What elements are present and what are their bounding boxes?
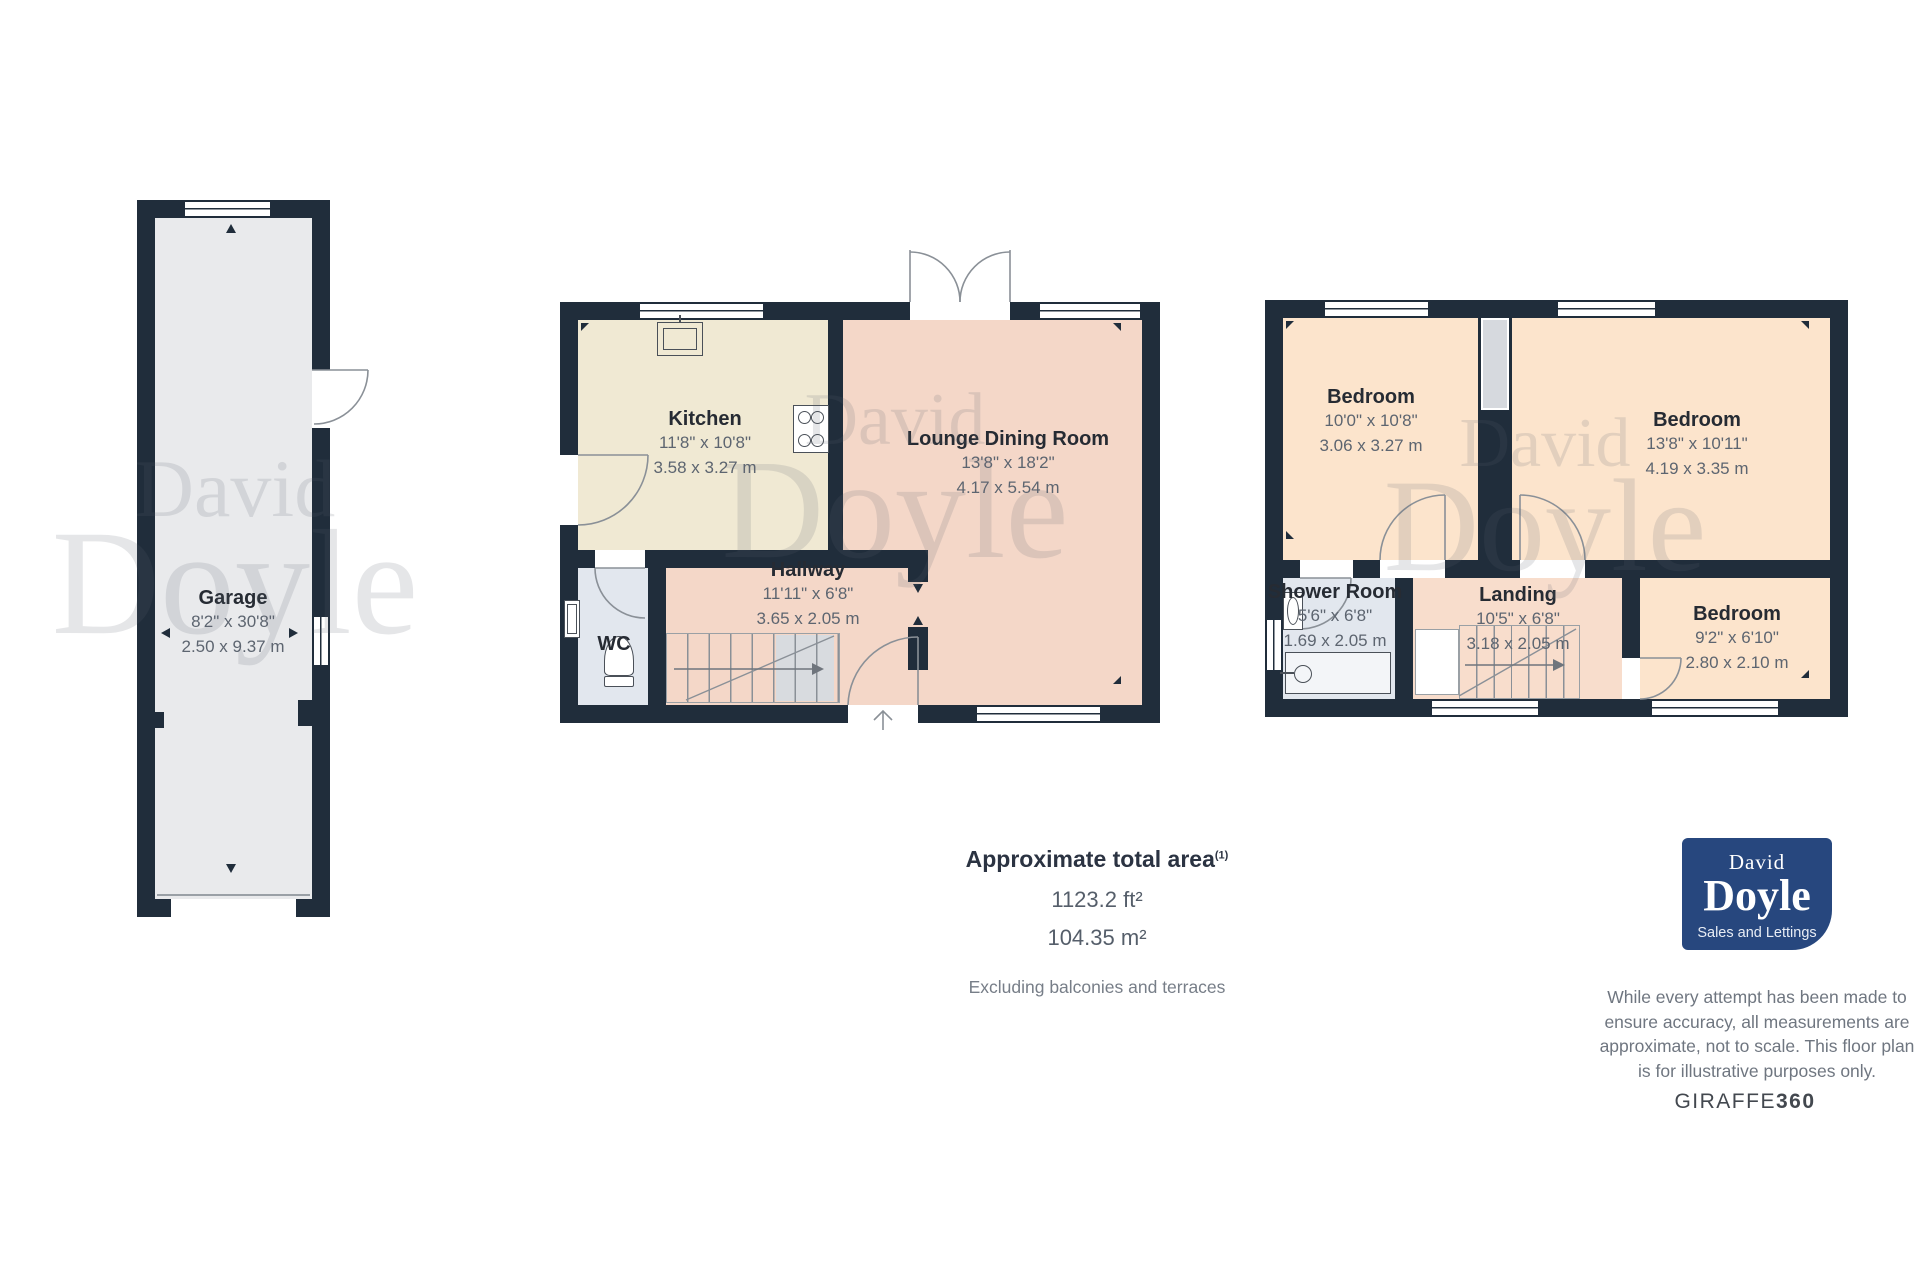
entrance-arrow-icon: [868, 706, 898, 732]
room-dim-metric: 3.18 x 2.05 m: [1466, 632, 1569, 657]
landing-window: [1432, 699, 1538, 717]
kitchen-lounge-wall: [828, 320, 843, 550]
room-name: WC: [597, 632, 630, 656]
garage-vehicle-door-line: [157, 894, 310, 896]
room-name: Lounge Dining Room: [907, 427, 1109, 451]
toilet-tank: [604, 676, 634, 687]
garage-window: [185, 200, 270, 218]
total-area-imperial: 1123.2 ft²: [966, 887, 1229, 913]
room-name: Shower Room: [1268, 580, 1402, 604]
dimension-arrow-left: [161, 628, 170, 638]
room-dim-metric: 1.69 x 2.05 m: [1268, 629, 1402, 654]
cupboard: [1481, 318, 1509, 410]
room-dim-imperial: 5'6" x 6'8": [1268, 604, 1402, 629]
shower-door-opening: [1300, 560, 1353, 578]
corner-tick: [1801, 321, 1809, 329]
wc-door: [595, 568, 647, 620]
room-dim-imperial: 13'8" x 18'2": [907, 451, 1109, 476]
sink-basin: [663, 328, 697, 350]
bedroom1-label: Bedroom 10'0" x 10'8" 3.06 x 3.27 m: [1319, 385, 1422, 458]
stair-guides: [666, 633, 840, 703]
brand-suffix: 360: [1776, 1090, 1816, 1113]
total-area-title: Approximate total area(1): [966, 846, 1229, 873]
kitchen-window: [640, 302, 763, 320]
disclaimer-text: While every attempt has been made to ens…: [1596, 985, 1918, 1083]
french-door-opening: [910, 302, 1010, 320]
bedroom1-door: [1380, 495, 1446, 561]
dimension-arrow-up: [226, 224, 236, 233]
room-dim-metric: 3.65 x 2.05 m: [756, 607, 859, 632]
room-name: Garage: [181, 586, 284, 610]
bedroom3-door-opening: [1622, 658, 1640, 699]
bedroom2-door: [1520, 495, 1586, 561]
logo-main-text: Doyle: [1682, 875, 1832, 917]
lounge-label: Lounge Dining Room 13'8" x 18'2" 4.17 x …: [907, 427, 1109, 500]
room-dim-imperial: 9'2" x 6'10": [1685, 626, 1788, 651]
room-dim-imperial: 11'11" x 6'8": [756, 582, 859, 607]
floorplan-page: Garage 8'2" x 30'8" 2.50 x 9.37 m: [0, 0, 1920, 1280]
corner-tick: [581, 323, 589, 331]
wc-wall: [648, 568, 666, 723]
corner-tick: [1113, 676, 1121, 684]
agency-logo: David Doyle Sales and Lettings: [1682, 838, 1832, 950]
bedroom3-window: [1652, 699, 1778, 717]
wall-pillar: [155, 712, 164, 728]
shower-tray: [1285, 652, 1391, 694]
room-dim-imperial: 11'8" x 10'8": [653, 431, 756, 456]
logo-tagline: Sales and Lettings: [1682, 925, 1832, 941]
total-area-title-text: Approximate total area: [966, 846, 1215, 872]
bedroom1-window: [1325, 300, 1428, 318]
corner-tick: [1113, 323, 1121, 331]
total-area-summary: Approximate total area(1) 1123.2 ft² 104…: [966, 846, 1229, 998]
room-dim-imperial: 13'8" x 10'11": [1645, 432, 1748, 457]
bedroom3-door: [1640, 658, 1685, 700]
wall: [1830, 300, 1848, 717]
opening-arrow: [913, 584, 923, 593]
side-door: [578, 455, 650, 527]
room-dim-imperial: 10'5" x 6'8": [1466, 607, 1569, 632]
room-dim-metric: 2.80 x 2.10 m: [1685, 651, 1788, 676]
room-name: Kitchen: [653, 407, 756, 431]
dimension-arrow-right: [289, 628, 298, 638]
wc-label: WC: [597, 632, 630, 656]
kitchen-sink: [657, 322, 703, 356]
wall: [137, 899, 171, 917]
sink-tap: [679, 315, 681, 323]
wall: [1142, 302, 1160, 723]
kitchen-label: Kitchen 11'8" x 10'8" 3.58 x 3.27 m: [653, 407, 756, 480]
bedroom3-label: Bedroom 9'2" x 6'10" 2.80 x 2.10 m: [1685, 602, 1788, 675]
room-dim-imperial: 8'2" x 30'8": [181, 610, 284, 635]
garage-side-door: [312, 368, 374, 430]
shower-room-label: Shower Room 5'6" x 6'8" 1.69 x 2.05 m: [1268, 580, 1402, 653]
garage-room-fill: [155, 218, 312, 899]
wall-pillar: [298, 700, 312, 726]
bedroom1-door-opening: [1380, 560, 1445, 578]
landing-label: Landing 10'5" x 6'8" 3.18 x 2.05 m: [1466, 583, 1569, 656]
room-dim-imperial: 10'0" x 10'8": [1319, 409, 1422, 434]
garage-floorplan: Garage 8'2" x 30'8" 2.50 x 9.37 m: [137, 200, 330, 917]
giraffe360-brand: GIRAFFE360: [1674, 1090, 1815, 1114]
corner-tick: [1801, 670, 1809, 678]
front-door: [848, 637, 920, 707]
garage-side-window: [312, 617, 330, 665]
french-doors: [908, 250, 1012, 304]
total-area-note: Excluding balconies and terraces: [966, 977, 1229, 998]
corner-tick: [1286, 321, 1294, 329]
burner: [798, 411, 811, 424]
bedroom2-door-opening: [1520, 560, 1585, 578]
room-dim-metric: 3.06 x 3.27 m: [1319, 434, 1422, 459]
wall: [296, 899, 330, 917]
total-area-metric: 104.35 m²: [966, 925, 1229, 951]
burner: [798, 434, 811, 447]
room-dim-metric: 2.50 x 9.37 m: [181, 635, 284, 660]
dimension-arrow-down: [226, 864, 236, 873]
ground-floorplan: Kitchen 11'8" x 10'8" 3.58 x 3.27 m Loun…: [560, 302, 1160, 723]
room-name: Bedroom: [1645, 408, 1748, 432]
sink-basin: [567, 604, 577, 634]
shower-drain: [1294, 665, 1312, 683]
stove-icon: [793, 405, 829, 453]
shower-pipe: [1280, 672, 1294, 674]
opening-arrow: [913, 616, 923, 625]
room-name: Hallway: [756, 558, 859, 582]
corner-tick: [1286, 531, 1294, 539]
wall: [312, 200, 330, 917]
room-dim-metric: 3.58 x 3.27 m: [653, 456, 756, 481]
room-name: Bedroom: [1319, 385, 1422, 409]
side-door-opening: [560, 455, 578, 525]
lounge-bottom-window: [977, 705, 1100, 723]
burner: [811, 434, 824, 447]
wall: [137, 200, 155, 917]
wc-door-opening: [595, 550, 645, 568]
room-dim-metric: 4.19 x 3.35 m: [1645, 457, 1748, 482]
room-name: Landing: [1466, 583, 1569, 607]
garage-label: Garage 8'2" x 30'8" 2.50 x 9.37 m: [181, 586, 284, 659]
landing-wall: [1622, 578, 1640, 658]
garage-vehicle-door-opening: [171, 899, 296, 917]
hall-lounge-wall-stub: [908, 568, 928, 582]
room-name: Bedroom: [1685, 602, 1788, 626]
brand-name: GIRAFFE: [1674, 1090, 1776, 1113]
bedroom2-window: [1558, 300, 1655, 318]
footnote-marker: (1): [1215, 849, 1228, 861]
lounge-top-window: [1040, 302, 1140, 320]
wc-sink: [564, 600, 580, 638]
staircase: [666, 633, 840, 703]
room-dim-metric: 4.17 x 5.54 m: [907, 476, 1109, 501]
burner: [811, 411, 824, 424]
bedroom2-label: Bedroom 13'8" x 10'11" 4.19 x 3.35 m: [1645, 408, 1748, 481]
hallway-label: Hallway 11'11" x 6'8" 3.65 x 2.05 m: [756, 558, 859, 631]
first-floorplan: Bedroom 10'0" x 10'8" 3.06 x 3.27 m Bedr…: [1265, 300, 1848, 717]
